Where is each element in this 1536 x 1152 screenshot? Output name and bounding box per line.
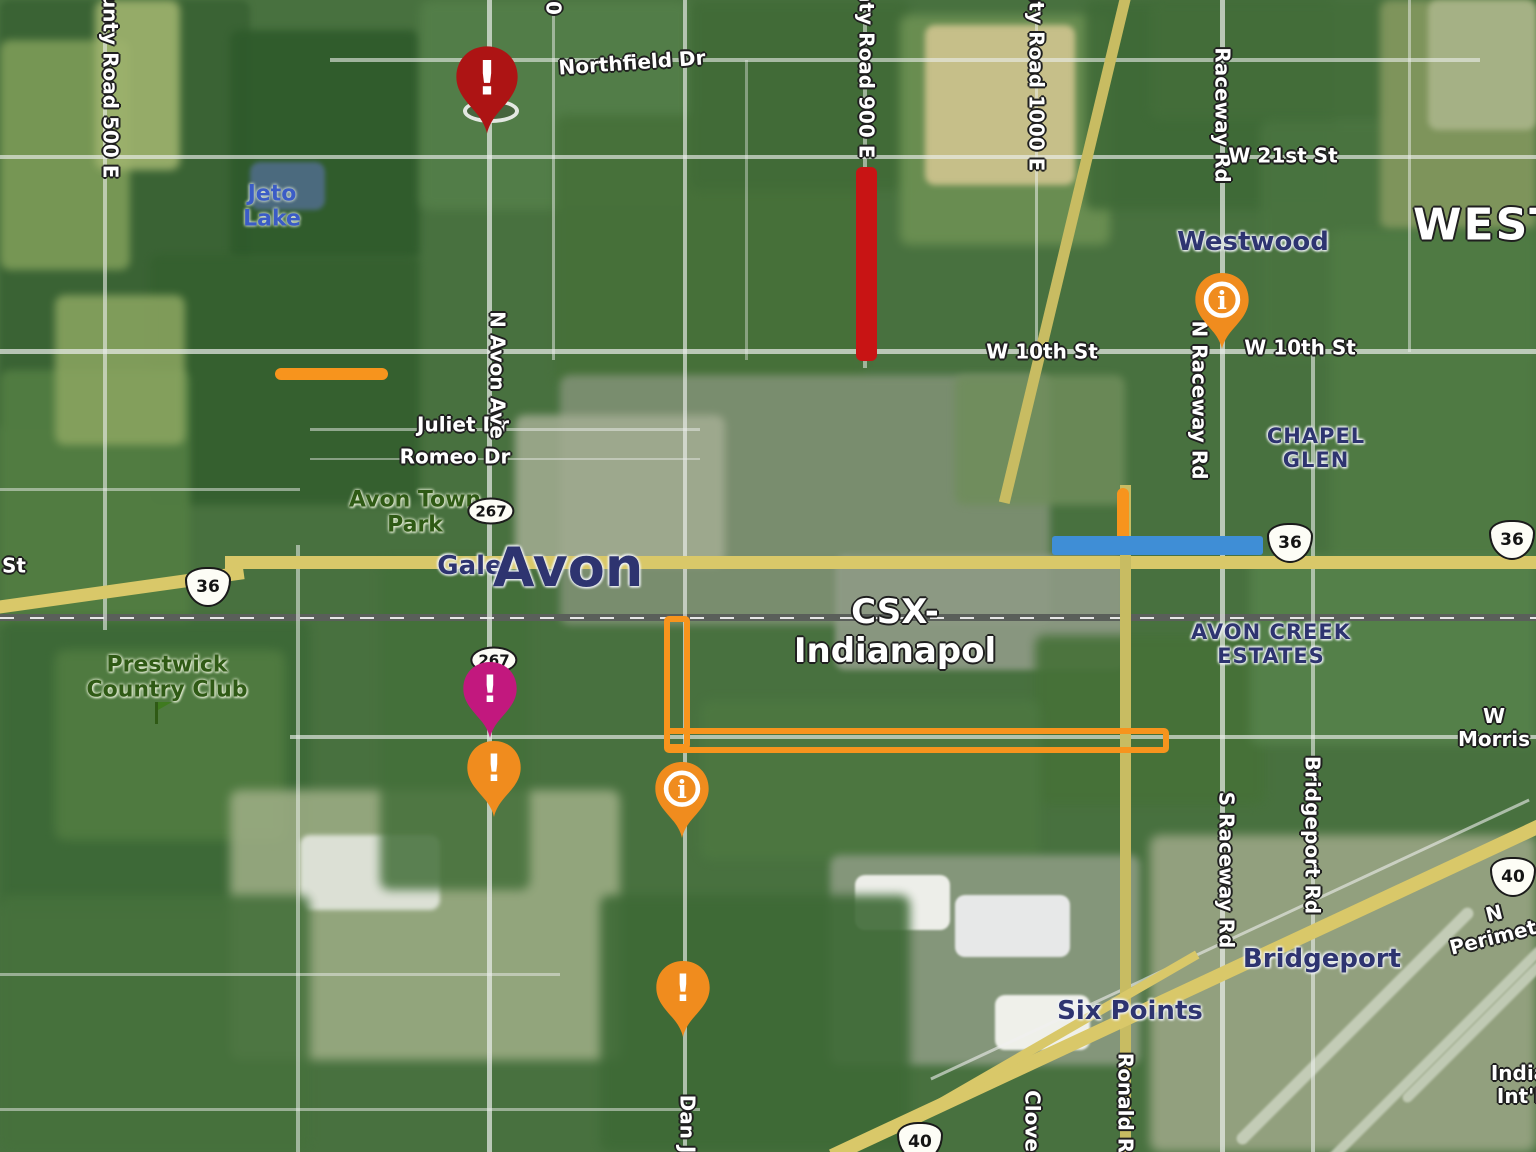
shield-number: 267 xyxy=(475,502,506,520)
alert-glyph: ! xyxy=(476,52,498,107)
terrain-patch xyxy=(150,255,420,505)
sr-267-shield-north: 267 xyxy=(467,498,514,525)
road-line xyxy=(745,60,748,360)
closure-segment-orange-pkwy[interactable] xyxy=(1117,488,1129,543)
road-line xyxy=(1408,0,1411,352)
alert-pin-orange-south[interactable]: ! xyxy=(654,960,712,1038)
road-line xyxy=(1035,0,1038,360)
road-label-clover: Clover xyxy=(1021,1090,1044,1152)
info-pin-center[interactable]: i xyxy=(653,761,711,839)
us-36-shield-west: 36 xyxy=(185,567,231,607)
alert-pin-orange-avon[interactable]: ! xyxy=(465,740,523,818)
alert-pin-magenta[interactable]: ! xyxy=(461,661,519,739)
terrain-patch xyxy=(700,700,1040,860)
alert-glyph: ! xyxy=(482,668,499,711)
satellite-map[interactable]: Northfield Dr County Road 500 E County R… xyxy=(0,0,1536,1152)
road-line xyxy=(0,1108,700,1111)
road-label-juliet: Juliet Dr xyxy=(417,414,509,437)
shield-number: 40 xyxy=(1501,867,1525,887)
terrain-patch xyxy=(1250,555,1536,745)
terrain-patch xyxy=(55,295,185,445)
terrain-patch xyxy=(95,0,180,170)
road-line xyxy=(0,973,560,976)
terrain-patch xyxy=(1035,635,1265,805)
terrain-patch xyxy=(600,895,910,1152)
terrain-patch xyxy=(925,25,1075,185)
terrain-patch xyxy=(250,162,325,210)
alert-glyph: ! xyxy=(675,967,692,1010)
highway-line xyxy=(225,556,1536,569)
road-line xyxy=(487,0,492,1152)
road-line xyxy=(1311,352,1315,1152)
terrain-patch xyxy=(955,895,1070,957)
terrain-patch xyxy=(515,415,725,565)
us-40-shield-south: 40 xyxy=(897,1122,943,1152)
shield-number: 40 xyxy=(908,1132,932,1152)
terrain-patch xyxy=(1150,835,1536,1152)
terrain-patch xyxy=(690,0,910,190)
closure-outline-morris[interactable] xyxy=(664,728,1169,753)
terrain-patch xyxy=(1330,230,1536,560)
terrain-patch xyxy=(0,895,310,1152)
road-line xyxy=(310,458,700,460)
highway-line xyxy=(1120,485,1131,1152)
terrain-patch xyxy=(230,30,420,260)
road-line xyxy=(552,0,555,360)
shield-number: 36 xyxy=(1278,533,1302,553)
closure-segment-red-cr900[interactable] xyxy=(856,167,877,361)
road-line xyxy=(296,545,300,1152)
info-glyph: i xyxy=(677,775,687,805)
road-line xyxy=(310,428,700,431)
terrain-patch xyxy=(1428,0,1536,130)
shield-number: 36 xyxy=(196,577,220,597)
info-pin-westwood[interactable]: i xyxy=(1193,272,1251,350)
road-line xyxy=(103,0,107,630)
closure-segment-blue-us36[interactable] xyxy=(1052,536,1263,555)
road-line xyxy=(0,349,1536,354)
closure-segment-orange-west[interactable] xyxy=(275,368,388,380)
alert-pin-red[interactable]: ! xyxy=(454,43,520,137)
shield-number: 36 xyxy=(1500,530,1524,550)
info-glyph: i xyxy=(1217,286,1227,316)
railroad-dashes xyxy=(0,617,1536,619)
alert-glyph: ! xyxy=(486,747,503,790)
road-line xyxy=(0,488,300,491)
road-line xyxy=(0,155,1536,159)
terrain-patch xyxy=(955,375,1125,505)
